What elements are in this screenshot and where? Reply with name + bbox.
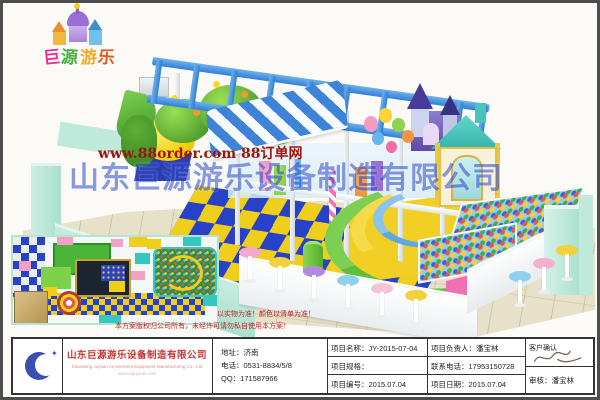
bar-stool (371, 283, 393, 319)
company-info-cell: 山东巨源游乐设备制造有限公司 Shandong Juyuan Amusement… (63, 339, 211, 393)
company-name-cn: 山东巨源游乐设备制造有限公司 (63, 347, 211, 361)
bar-stool (303, 266, 325, 302)
balloon (392, 118, 405, 132)
plan-block (147, 239, 161, 249)
bar-stool (239, 247, 261, 283)
bar-stool (509, 271, 531, 307)
mint-wall-right (579, 195, 593, 295)
plan-block (183, 237, 201, 246)
castle-cone-roof (440, 95, 460, 115)
balloon (402, 130, 414, 143)
bar-stool (405, 290, 427, 326)
plan-block (19, 261, 31, 271)
disclaimer-line1: 以实物为准！颜色以清单为准！ (217, 309, 315, 319)
logo-castle-roof-icon (88, 19, 102, 30)
balloon (379, 108, 392, 123)
plan-block (135, 253, 150, 264)
bar-stool (533, 258, 555, 294)
plan-green-zone (41, 267, 71, 289)
castle-cone-roof (407, 83, 433, 109)
logo-castle-body-icon (69, 26, 87, 42)
brand-char: 游 (79, 42, 98, 68)
brand-name: 巨 源 游 乐 (43, 43, 112, 68)
project-name-cell: 项目名称：JY-2015-07-04 (327, 339, 427, 357)
plan-slide-arc (163, 255, 203, 291)
review-cell: 审核：潘宝林 (525, 367, 593, 393)
project-leader-cell: 项目负责人：潘宝林 (427, 339, 525, 357)
plan-ball-pit (101, 265, 125, 281)
plan-block (203, 295, 217, 306)
contact-phone: 电话：0531-8834/5/8 (221, 359, 325, 372)
plan-photo-inset (14, 291, 48, 325)
star-icon: ✦ (51, 349, 58, 358)
balloon (364, 116, 378, 132)
company-name-en: Shandong Juyuan Amusement Equipment Manu… (63, 364, 211, 369)
project-no-cell: 项目编号：2015.07.04 (327, 375, 427, 393)
logo-castle-roof-icon (52, 21, 66, 32)
company-logo-cell: ✦ (13, 339, 62, 393)
company-website: www.sdjuyuan.com (63, 371, 211, 376)
project-date-cell: 项目日期：2015.07.04 (427, 375, 525, 393)
plan-block (129, 237, 147, 247)
title-block: ✦ 山东巨源游乐设备制造有限公司 Shandong Juyuan Amuseme… (11, 337, 595, 395)
castle-arch (423, 123, 439, 145)
project-spec-cell: 项目规格： (327, 357, 427, 375)
logo-castle-finial-icon (74, 3, 80, 9)
contact-address: 地址：济南 (221, 346, 325, 359)
brand-char: 巨 (42, 42, 62, 69)
contact-qq: QQ：171587966 (221, 372, 325, 385)
bar-stool (269, 257, 291, 293)
balloon (386, 141, 397, 153)
contact-cell: 地址：济南 电话：0531-8834/5/8 QQ：171587966 (213, 339, 325, 393)
brand-char: 源 (61, 42, 80, 68)
floor-plan-thumbnail (11, 235, 219, 325)
bar-stool (556, 245, 578, 281)
plan-block (109, 281, 125, 292)
brand-logo: 巨 源 游 乐 (41, 9, 125, 81)
balloon (372, 132, 384, 145)
brand-char: 乐 (97, 42, 116, 68)
disclaimer-line2: 本方案版权归公司所有，未经许可请勿私自使用本方案！ (115, 321, 290, 331)
bar-stool (337, 275, 359, 311)
house-chimney (475, 103, 486, 123)
design-sheet: www.88order.com 88订单网 山东巨源游乐设备制造有限公司 巨 源… (0, 0, 600, 400)
contact-phone-cell: 联系电话：17953150728 (427, 357, 525, 375)
company-watermark: 山东巨源游乐设备制造有限公司 (69, 153, 503, 197)
plan-block (57, 237, 73, 245)
plan-block (131, 271, 145, 280)
plan-block (111, 239, 123, 247)
plan-carousel (57, 291, 81, 315)
customer-confirm-cell: 客户确认 (525, 339, 593, 367)
